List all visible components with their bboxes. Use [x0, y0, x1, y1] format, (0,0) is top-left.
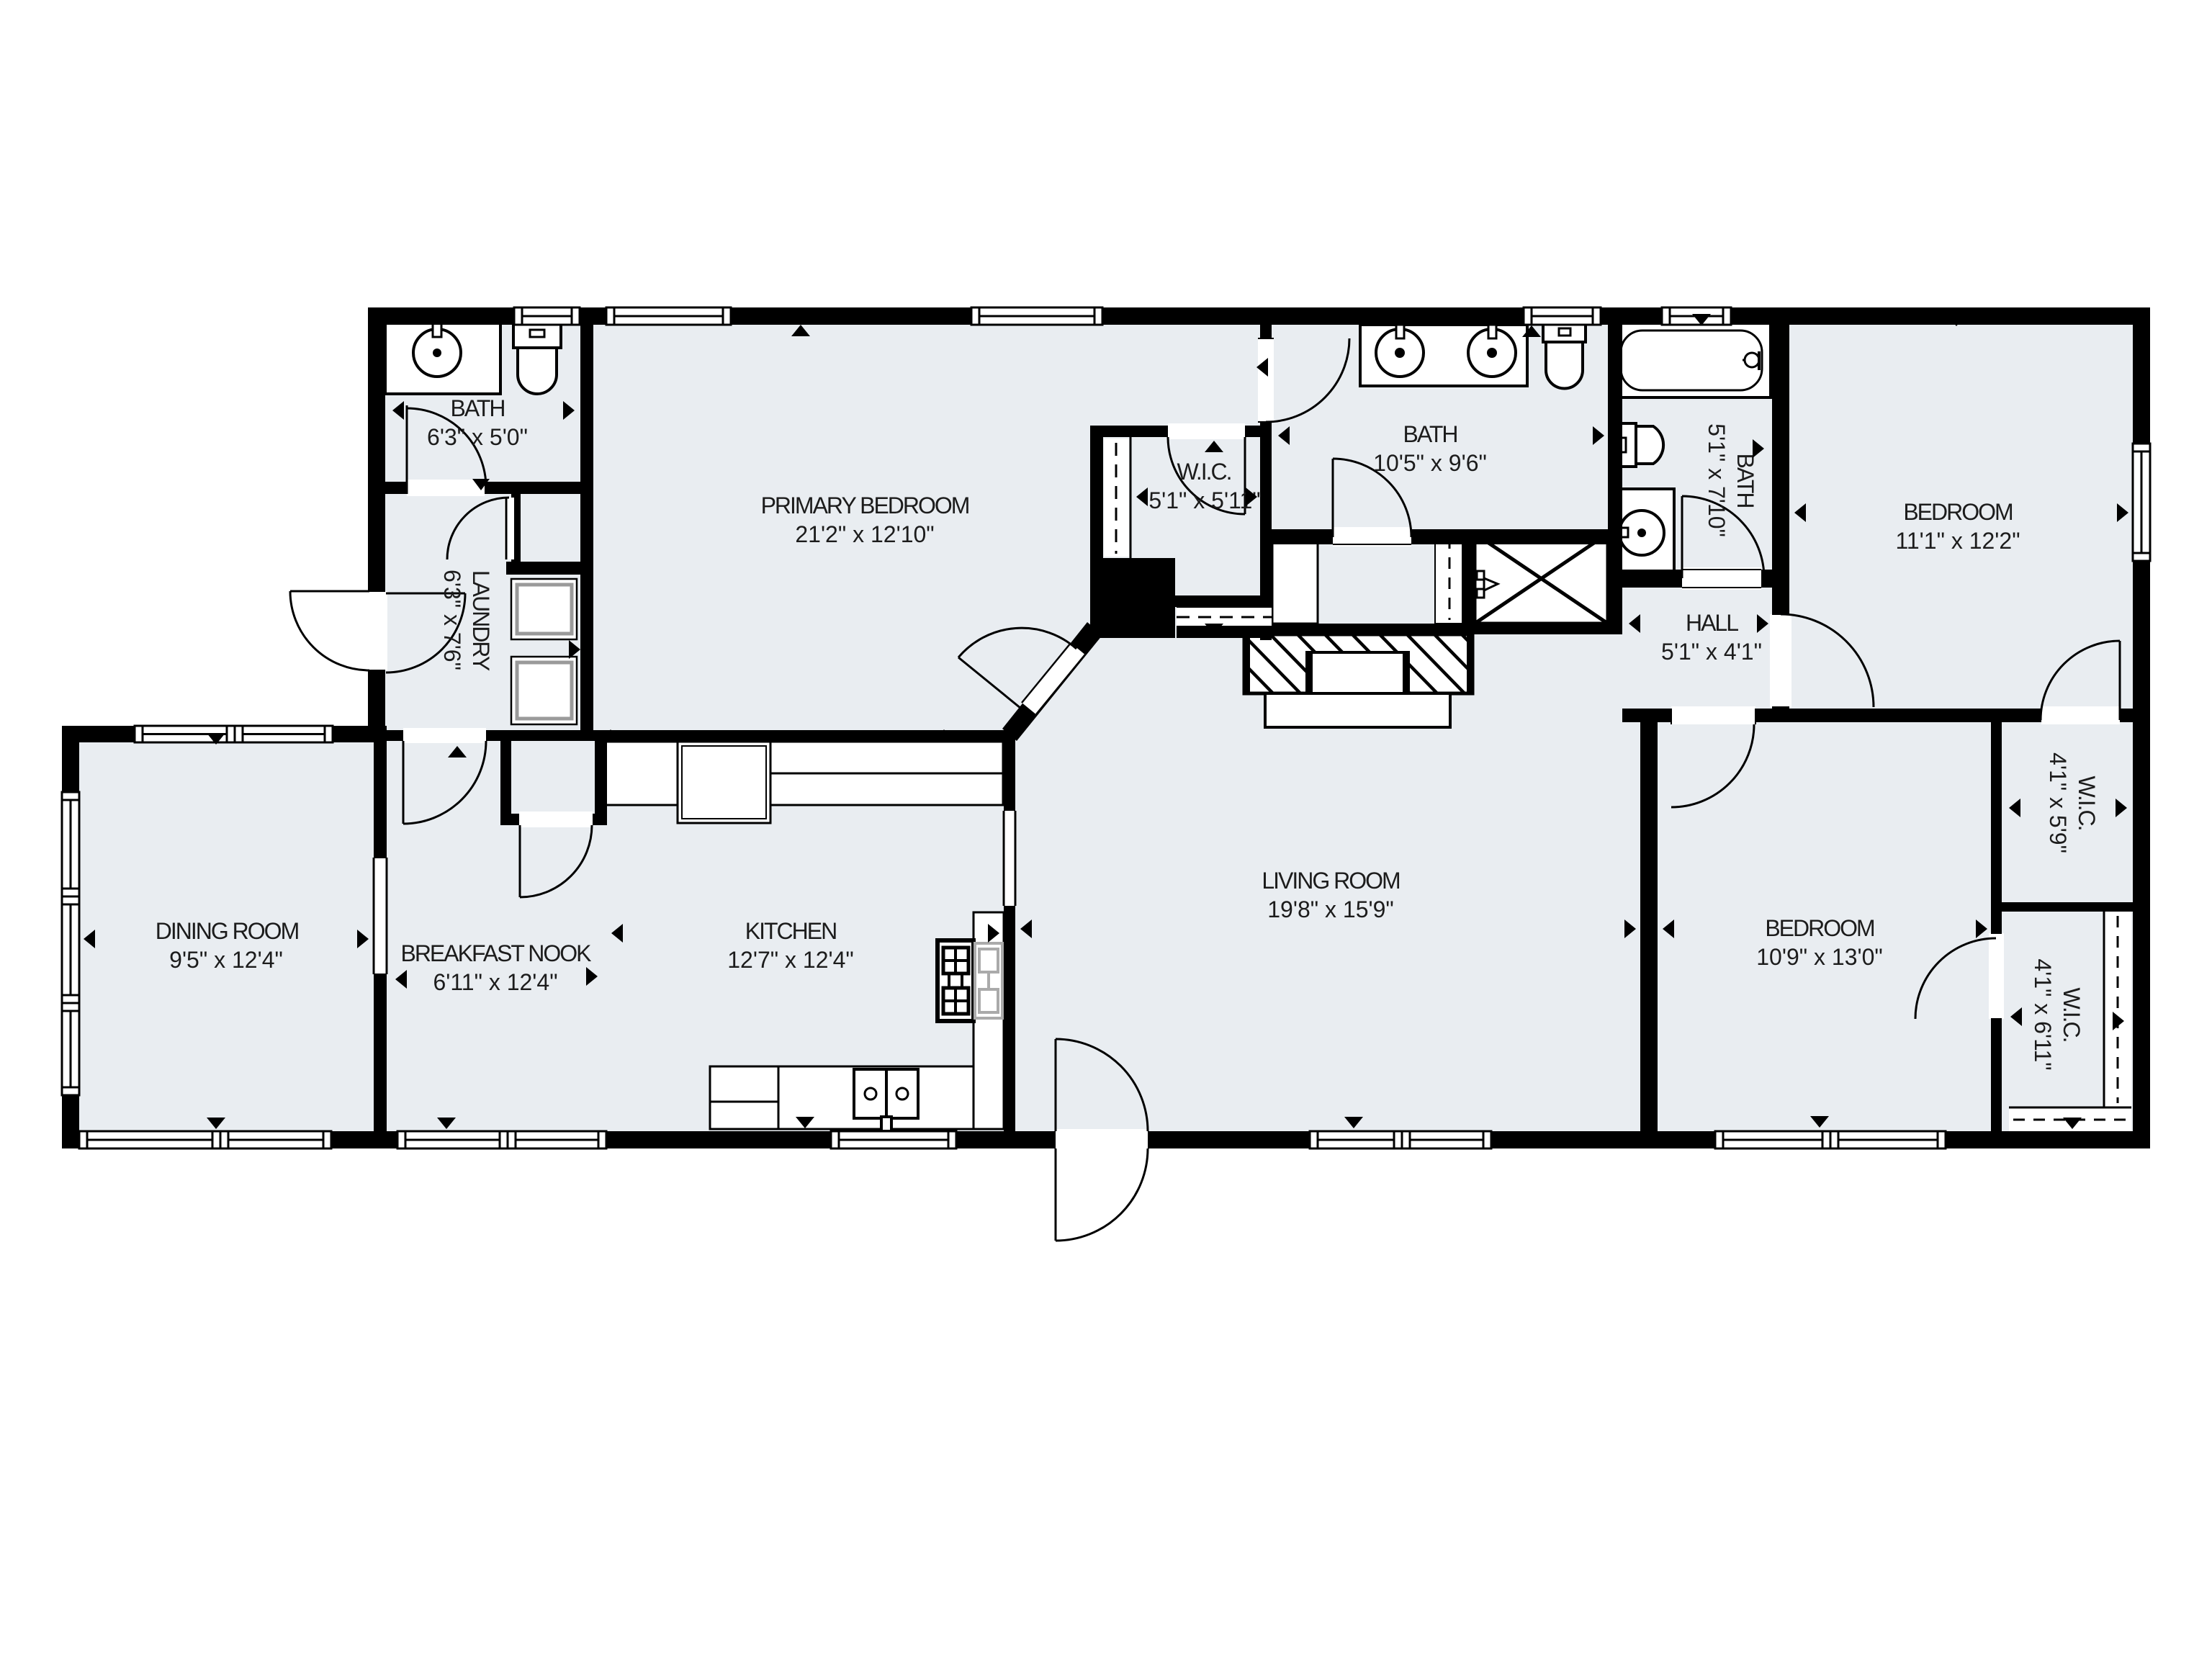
svg-text:5'1" x 4'1": 5'1" x 4'1" [1661, 639, 1762, 665]
svg-text:5'1" x 7'10": 5'1" x 7'10" [1704, 423, 1730, 537]
svg-text:21'2" x 12'10": 21'2" x 12'10" [795, 521, 934, 547]
svg-text:19'8" x 15'9": 19'8" x 15'9" [1267, 896, 1394, 922]
svg-text:10'5" x 9'6": 10'5" x 9'6" [1373, 450, 1487, 476]
svg-text:BREAKFAST NOOK: BREAKFAST NOOK [400, 940, 591, 966]
svg-text:4'1" x 5'9": 4'1" x 5'9" [2045, 752, 2071, 853]
svg-text:PRIMARY BEDROOM: PRIMARY BEDROOM [761, 493, 969, 518]
svg-text:DINING ROOM: DINING ROOM [156, 918, 299, 944]
svg-text:12'7" x 12'4": 12'7" x 12'4" [727, 947, 854, 973]
svg-text:6'11" x 12'4": 6'11" x 12'4" [433, 969, 557, 995]
svg-text:BATH: BATH [1732, 454, 1758, 508]
svg-text:BATH: BATH [1403, 421, 1457, 447]
svg-text:11'1" x 12'2": 11'1" x 12'2" [1895, 528, 2020, 554]
svg-text:W.I.C.: W.I.C. [2074, 775, 2100, 829]
svg-text:BATH: BATH [451, 395, 505, 421]
svg-text:LIVING ROOM: LIVING ROOM [1262, 868, 1400, 894]
svg-text:W.I.C.: W.I.C. [2059, 987, 2085, 1041]
svg-text:W.I.C.: W.I.C. [1177, 459, 1231, 485]
svg-text:BEDROOM: BEDROOM [1903, 499, 2013, 525]
svg-text:6'3" x 7'6": 6'3" x 7'6" [439, 570, 465, 670]
svg-text:6'3" x 5'0": 6'3" x 5'0" [427, 424, 528, 450]
svg-text:KITCHEN: KITCHEN [745, 918, 836, 944]
svg-text:BEDROOM: BEDROOM [1765, 915, 1874, 941]
svg-text:4'1" x 6'11": 4'1" x 6'11" [2030, 958, 2056, 1070]
svg-text:LAUNDRY: LAUNDRY [468, 570, 494, 671]
svg-text:HALL: HALL [1686, 610, 1738, 636]
svg-text:10'9" x 13'0": 10'9" x 13'0" [1756, 944, 1883, 970]
svg-text:5'1" x 5'11": 5'1" x 5'11" [1148, 487, 1260, 513]
svg-text:9'5" x 12'4": 9'5" x 12'4" [169, 947, 283, 973]
